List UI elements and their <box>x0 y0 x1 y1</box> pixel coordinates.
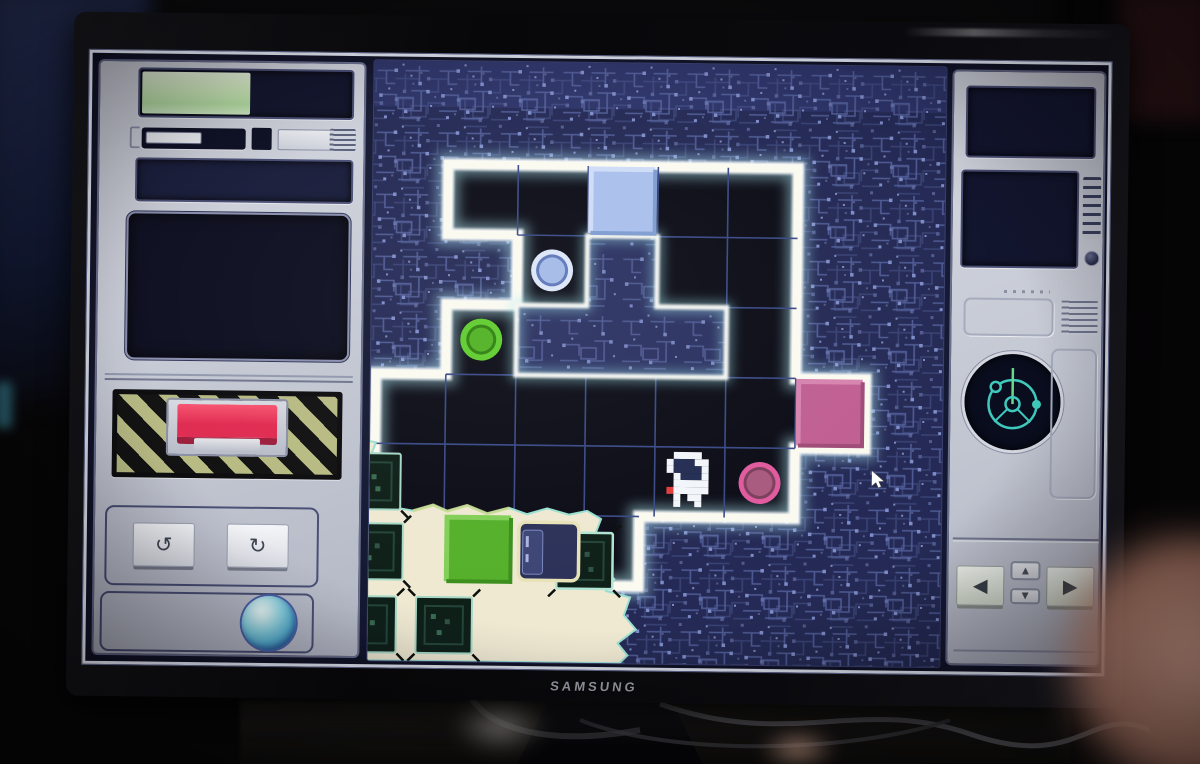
large-display <box>125 211 351 362</box>
tile-blue-square[interactable] <box>591 169 656 234</box>
next-level-button[interactable]: ▶ <box>1046 566 1094 607</box>
game-board[interactable] <box>367 60 946 667</box>
knob-button[interactable] <box>1084 251 1099 266</box>
prev-level-button[interactable]: ◀ <box>956 565 1004 606</box>
background-teal-glint <box>0 382 12 428</box>
monitor: ↺ ↻ <box>66 12 1130 709</box>
undo-button[interactable]: ↺ <box>132 522 195 567</box>
background-maroon-shape <box>1120 0 1200 120</box>
alert-button-tab <box>194 438 260 451</box>
slider-gap <box>252 128 272 150</box>
power-orb-module <box>99 591 314 654</box>
panel-separator <box>953 537 1099 543</box>
history-controls: ↺ ↻ <box>104 505 319 588</box>
gyro-display <box>964 353 1061 450</box>
vent-grille-icon <box>330 129 356 151</box>
up-button[interactable]: ▲ <box>1010 561 1040 580</box>
empty-socket[interactable] <box>518 522 579 581</box>
alert-module <box>112 389 343 480</box>
chip <box>407 589 480 662</box>
right-display-top <box>966 85 1097 159</box>
power-orb-button[interactable] <box>241 596 296 651</box>
groove-panel <box>963 297 1053 336</box>
redo-button[interactable]: ↻ <box>226 523 289 568</box>
progress-bar <box>138 67 355 120</box>
bezel-reflection <box>904 28 1114 39</box>
panel-divider <box>105 373 353 383</box>
vent-slats-icon <box>1083 177 1102 239</box>
tile-green-square[interactable] <box>446 517 511 582</box>
down-button[interactable]: ▼ <box>1010 588 1040 604</box>
tick-marks <box>1004 290 1050 294</box>
tall-panel-outline <box>1049 349 1097 500</box>
small-display <box>135 157 354 204</box>
right-display-vented <box>960 169 1079 268</box>
gyroscope-radar-icon <box>964 353 1061 450</box>
slider-bracket <box>130 126 140 148</box>
samsung-logo: SAMSUNG <box>549 678 638 694</box>
slider-handle[interactable] <box>146 131 202 144</box>
panel-bottom-line <box>953 649 1095 653</box>
expo-photo-background: ↺ ↻ <box>0 0 1200 764</box>
progress-bar-fill <box>142 71 251 114</box>
alert-button-mount <box>166 398 289 457</box>
tile-pink-square[interactable] <box>798 381 863 446</box>
left-control-panel: ↺ ↻ <box>91 59 366 658</box>
slider-row <box>129 123 355 156</box>
vent-grille-icon <box>1061 301 1097 335</box>
game-screen: ↺ ↻ <box>82 50 1111 676</box>
right-control-panel: ◀ ▲ ▼ ▶ <box>945 69 1106 667</box>
slider-track[interactable] <box>142 127 246 149</box>
